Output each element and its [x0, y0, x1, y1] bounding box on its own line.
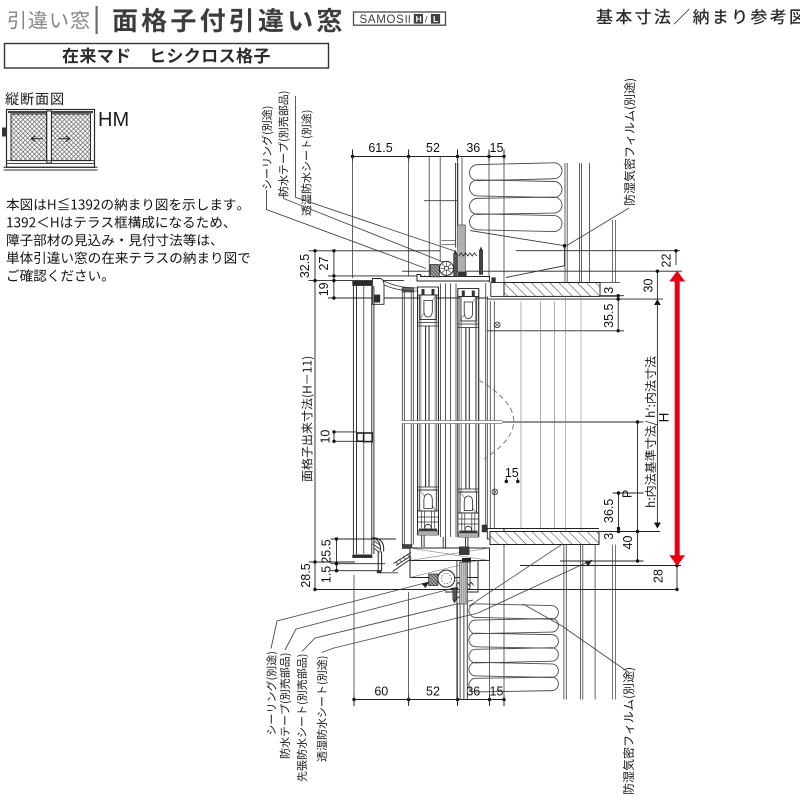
svg-text:15: 15: [490, 141, 504, 155]
svg-text:30: 30: [642, 279, 656, 293]
svg-text:1.5: 1.5: [320, 566, 334, 583]
svg-text:40: 40: [621, 536, 635, 550]
svg-text:H: H: [416, 14, 422, 24]
svg-text:52: 52: [426, 141, 440, 155]
svg-text:36: 36: [466, 141, 480, 155]
svg-text:36.5: 36.5: [602, 499, 616, 523]
svg-text:3: 3: [602, 533, 616, 540]
svg-text:HM: HM: [98, 109, 129, 131]
svg-text:28.5: 28.5: [299, 563, 313, 587]
svg-text:SAMOS: SAMOS: [360, 14, 405, 26]
svg-text:22: 22: [659, 254, 673, 268]
svg-text:L: L: [433, 14, 438, 24]
svg-text:H: H: [657, 413, 672, 423]
svg-text:19: 19: [317, 282, 331, 296]
svg-text:15: 15: [505, 466, 519, 480]
svg-text:3: 3: [602, 287, 616, 294]
svg-text:28: 28: [651, 569, 665, 583]
svg-text:52: 52: [426, 685, 440, 699]
svg-text:32.5: 32.5: [298, 254, 312, 278]
svg-text:61.5: 61.5: [368, 141, 392, 155]
svg-text:60: 60: [374, 685, 388, 699]
svg-text:27: 27: [317, 257, 331, 271]
svg-text:10: 10: [318, 430, 332, 444]
svg-text:/: /: [425, 15, 428, 26]
svg-text:25.5: 25.5: [320, 539, 334, 563]
svg-text:P: P: [621, 490, 635, 498]
svg-text:35.5: 35.5: [602, 303, 616, 327]
